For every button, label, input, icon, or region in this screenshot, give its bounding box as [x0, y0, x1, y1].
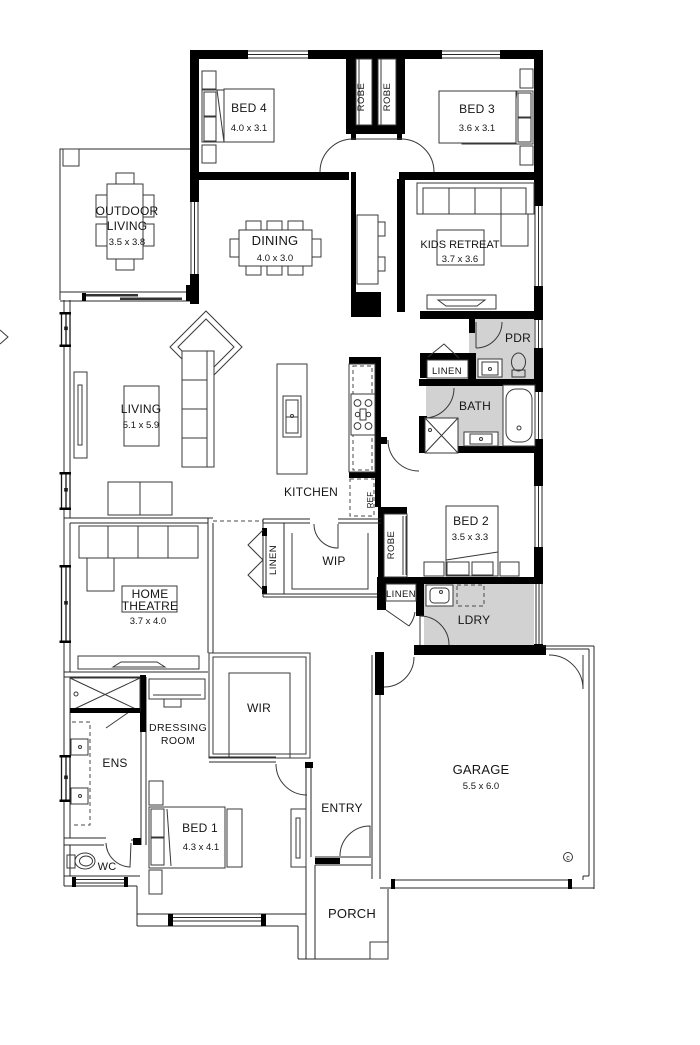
svg-text:LINEN: LINEN — [386, 589, 416, 600]
svg-text:GARAGE: GARAGE — [453, 762, 510, 777]
svg-text:3.7 x 3.6: 3.7 x 3.6 — [442, 254, 478, 265]
svg-text:OUTDOOR: OUTDOOR — [96, 204, 159, 218]
svg-text:KITCHEN: KITCHEN — [284, 485, 338, 499]
svg-text:WIR: WIR — [247, 701, 271, 715]
svg-text:c: c — [566, 855, 570, 862]
svg-text:WIP: WIP — [322, 554, 345, 568]
svg-text:THEATRE: THEATRE — [122, 599, 179, 613]
svg-text:ENTRY: ENTRY — [321, 801, 362, 815]
svg-text:PORCH: PORCH — [328, 906, 376, 921]
svg-text:LDRY: LDRY — [458, 613, 491, 627]
svg-text:3.5 x 3.8: 3.5 x 3.8 — [109, 237, 145, 248]
svg-text:PDR: PDR — [505, 331, 531, 345]
svg-text:LIVING: LIVING — [121, 402, 162, 416]
svg-text:ENS: ENS — [102, 756, 127, 770]
svg-text:ROBE: ROBE — [386, 531, 397, 560]
svg-text:DRESSING: DRESSING — [149, 722, 207, 734]
svg-text:LINEN: LINEN — [432, 366, 462, 377]
svg-text:5.1 x 5.9: 5.1 x 5.9 — [123, 420, 159, 431]
svg-text:KIDS RETREAT: KIDS RETREAT — [420, 239, 500, 251]
svg-text:ROBE: ROBE — [382, 83, 393, 112]
svg-text:4.0 x 3.0: 4.0 x 3.0 — [257, 253, 293, 264]
svg-text:BED 1: BED 1 — [182, 821, 218, 835]
svg-text:DINING: DINING — [252, 233, 299, 248]
svg-text:LINEN: LINEN — [268, 545, 279, 575]
svg-text:ROOM: ROOM — [161, 735, 195, 747]
svg-text:WC: WC — [98, 861, 117, 873]
svg-text:3.6 x 3.1: 3.6 x 3.1 — [459, 123, 495, 134]
svg-text:BED 2: BED 2 — [453, 514, 489, 528]
svg-text:LIVING: LIVING — [107, 219, 148, 233]
svg-text:REF: REF — [366, 492, 375, 509]
svg-text:4.0 x 3.1: 4.0 x 3.1 — [231, 123, 267, 134]
svg-text:ROBE: ROBE — [356, 83, 367, 112]
svg-text:BATH: BATH — [459, 399, 491, 413]
svg-text:3.7 x 4.0: 3.7 x 4.0 — [130, 616, 166, 627]
svg-text:BED 3: BED 3 — [459, 102, 495, 116]
svg-text:3.5 x 3.3: 3.5 x 3.3 — [452, 532, 488, 543]
svg-text:4.3 x 4.1: 4.3 x 4.1 — [183, 842, 219, 853]
svg-text:BED 4: BED 4 — [231, 101, 267, 115]
svg-text:5.5 x 6.0: 5.5 x 6.0 — [463, 781, 499, 792]
